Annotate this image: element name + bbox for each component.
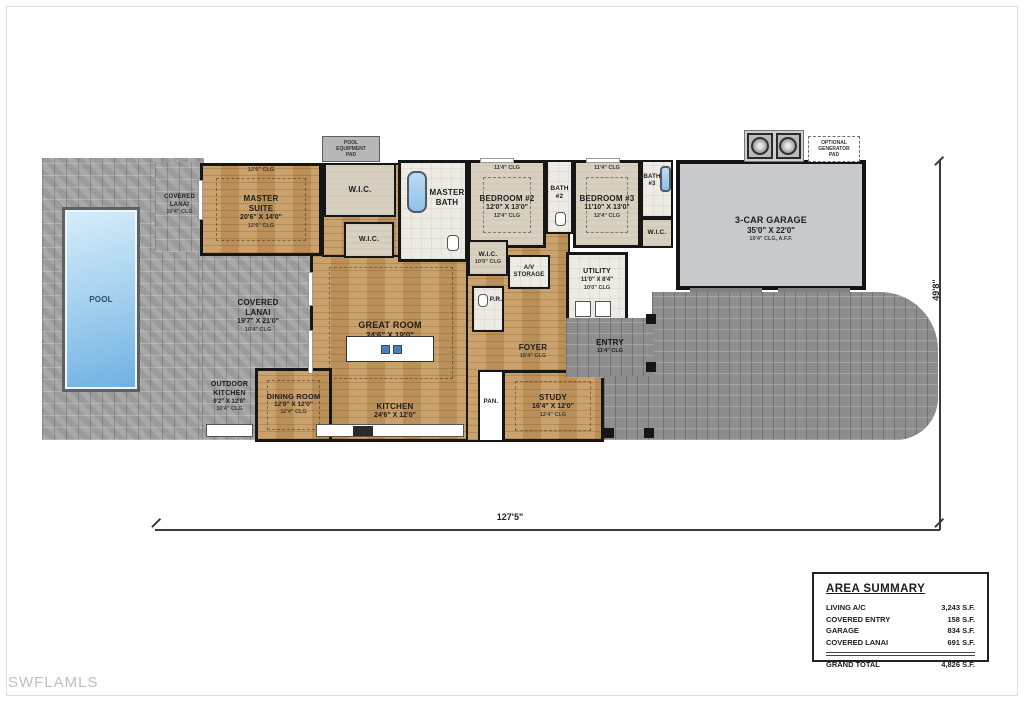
area-summary-title: AREA SUMMARY	[826, 583, 975, 595]
wic3-room: W.I.C.	[641, 218, 673, 248]
master-suite-room: MASTER SUITE 20'6" X 14'0" 12'6" CLG	[200, 163, 322, 256]
pool: POOL	[62, 207, 140, 392]
bedroom3-room: BEDROOM #3 11'10" X 13'0" 12'4" CLG	[573, 160, 641, 248]
window	[480, 158, 514, 163]
kitchen-island	[346, 336, 434, 362]
ac-unit-icon	[776, 133, 802, 159]
floorplan-page: POOL COVERED LANAI 10'4" CLG COVERED LAN…	[0, 0, 1024, 702]
summary-divider	[826, 652, 975, 656]
dimension-width-label: 127'5"	[480, 512, 540, 522]
covered-lanai-small	[155, 162, 204, 252]
master-tub	[407, 171, 427, 213]
dimension-line-horizontal	[155, 529, 940, 531]
master-top-clg-label: 12'6" CLG	[248, 167, 274, 173]
outdoor-kitchen-counter	[206, 424, 253, 437]
av-storage-room: A/V STORAGE	[508, 255, 550, 289]
pool-equipment-pad: POOL EQUIPMENT PAD	[322, 136, 380, 162]
wic-lower-room: W.I.C.	[344, 222, 394, 258]
ac-unit-icon	[747, 133, 773, 159]
wic-top-room: W.I.C.	[324, 163, 396, 217]
window	[308, 330, 313, 374]
window	[308, 272, 313, 306]
bedroom2-room: BEDROOM #2 12'0" X 13'0" 12'4" CLG	[468, 160, 546, 248]
toilet-icon	[478, 294, 488, 307]
master-bath-room: MASTER BATH	[398, 160, 468, 262]
area-summary-row: COVERED LANAI 691 S.F.	[826, 637, 975, 649]
bath2-room: BATH #2	[546, 160, 573, 234]
washer-icon	[575, 301, 591, 317]
cooktop-icon	[381, 345, 390, 354]
garage-room: 3-CAR GARAGE 35'0" X 22'0" 10'4" CLG, A.…	[676, 160, 866, 290]
area-summary-row: COVERED ENTRY 158 S.F.	[826, 614, 975, 626]
utility-room: UTILITY 11'0" X 8'4" 10'0" CLG	[566, 252, 628, 322]
bath3-tub	[660, 166, 671, 192]
wic4-room: W.I.C. 10'0" CLG	[468, 240, 508, 276]
watermark: SWFLAMLS	[8, 674, 99, 691]
range-icon	[353, 426, 373, 436]
entry-column	[646, 314, 656, 324]
driveway	[652, 292, 938, 440]
pool-label: POOL	[89, 295, 112, 305]
pr-room: P.R.	[472, 286, 504, 332]
toilet-icon	[555, 212, 566, 226]
dimension-height-label: 49'8"	[931, 270, 941, 310]
porch-column	[604, 428, 614, 438]
entry-walk	[566, 318, 654, 378]
area-summary-row: GARAGE 834 S.F.	[826, 625, 975, 637]
dimension-line-vertical	[939, 160, 941, 530]
porch-column	[644, 428, 654, 438]
cooktop-icon	[393, 345, 402, 354]
pantry-room: PAN.	[478, 370, 504, 442]
study-room	[502, 370, 604, 442]
area-summary-total-row: GRAND TOTAL 4,826 S.F.	[826, 659, 975, 671]
dimension-tick	[151, 518, 161, 528]
dryer-icon	[595, 301, 611, 317]
area-summary-box: AREA SUMMARY LIVING A/C 3,243 S.F. COVER…	[812, 572, 989, 662]
window	[198, 180, 203, 220]
ac-units-pad	[744, 130, 804, 162]
area-summary-row: LIVING A/C 3,243 S.F.	[826, 602, 975, 614]
entry-column	[646, 362, 656, 372]
bedroom2-top-clg-label: 11'4" CLG	[494, 165, 520, 171]
bath3-room: BATH #3	[641, 160, 673, 218]
kitchen-counter	[316, 424, 464, 437]
bedroom3-top-clg-label: 11'4" CLG	[594, 165, 620, 171]
toilet-icon	[447, 235, 459, 251]
window	[586, 158, 620, 163]
generator-pad: OPTIONAL GENERATOR PAD	[808, 136, 860, 162]
